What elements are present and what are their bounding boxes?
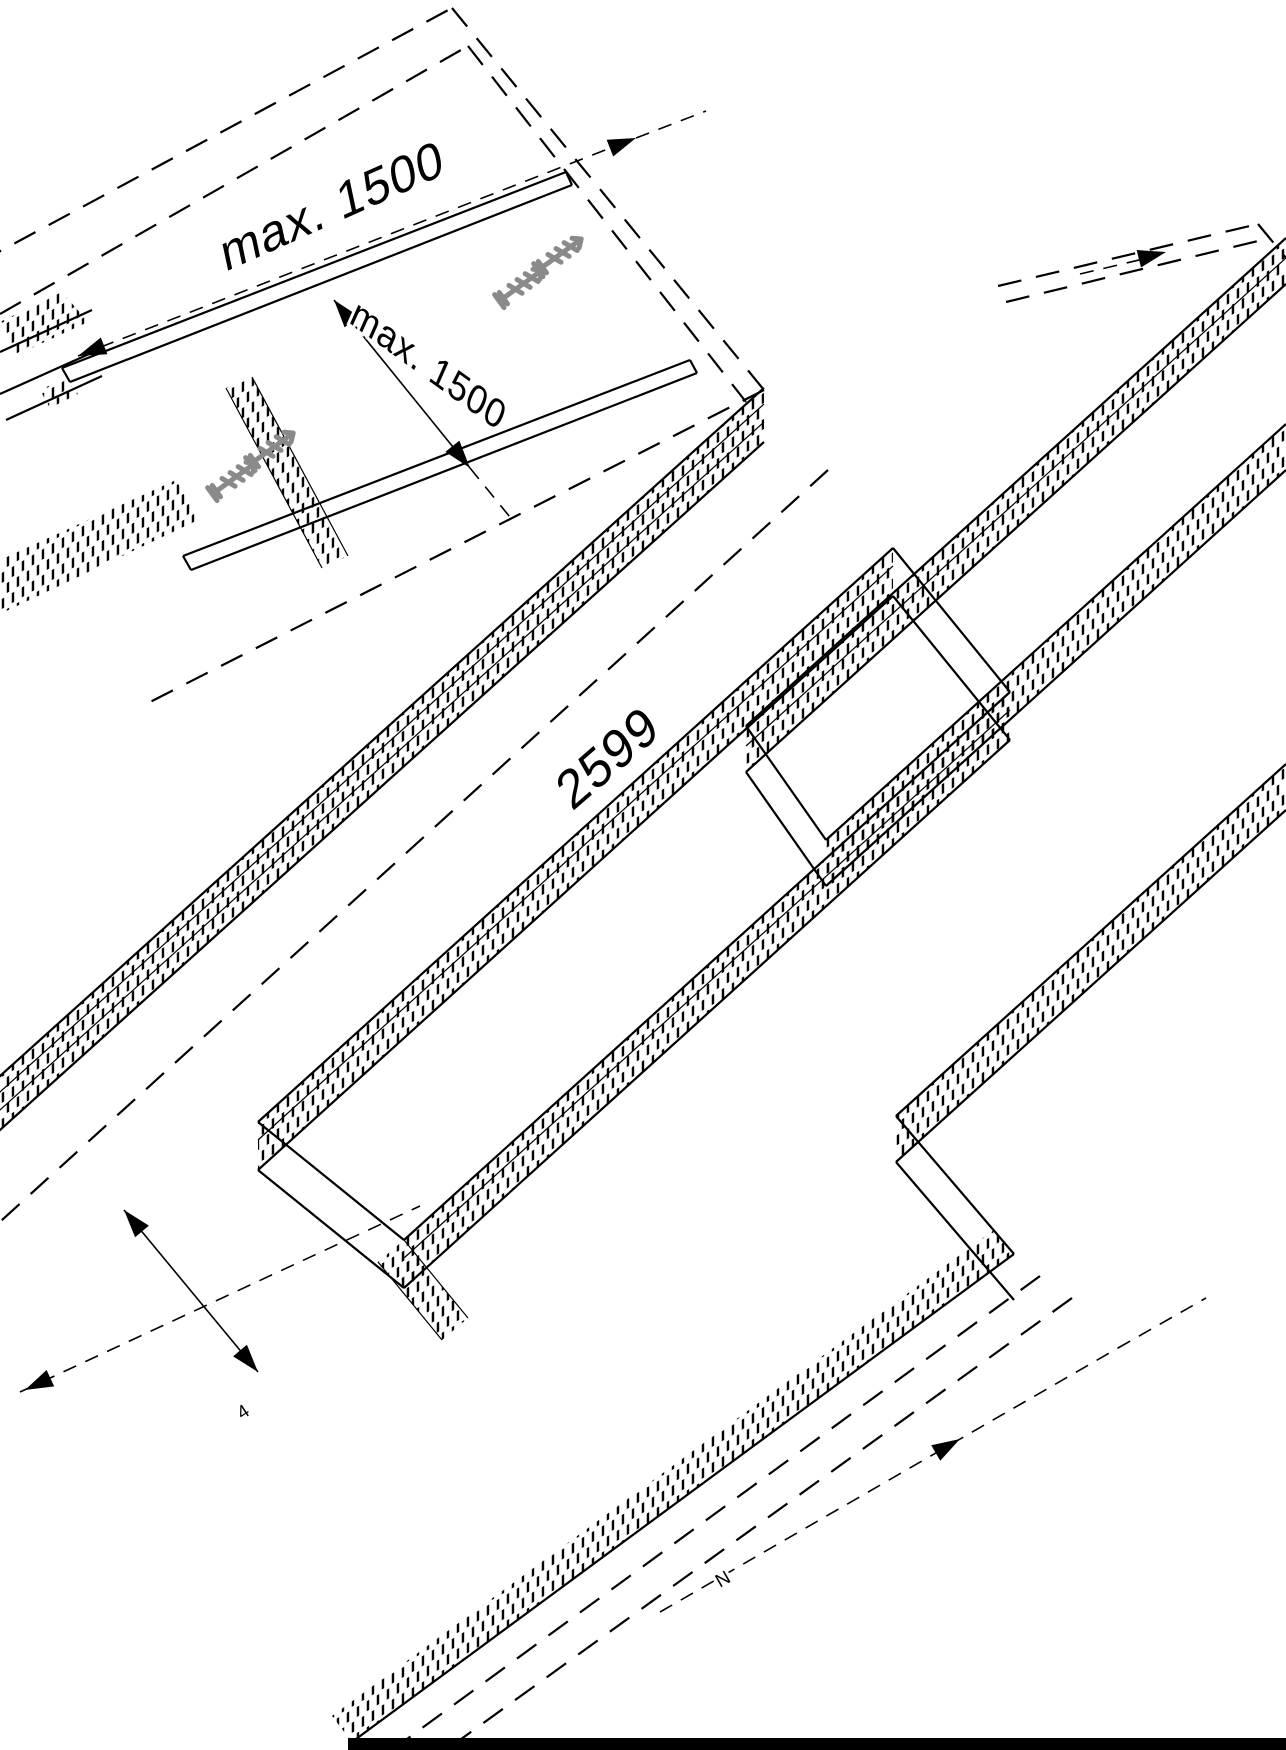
batten-end-cap — [690, 360, 697, 373]
isometric-assembly-drawing: max. 1500 max. 1500 2599 4 N — [0, 0, 1286, 1750]
sheet-layer-line — [258, 566, 893, 1140]
dimension-arrow — [21, 1370, 54, 1398]
dimension-arrow — [607, 130, 640, 157]
drawing-canvas: max. 1500 max. 1500 2599 4 N — [0, 0, 1286, 1750]
dim-label-edge-small: 4 — [233, 1400, 254, 1424]
batten-end-cap — [183, 556, 191, 570]
batten-end-hatch — [40, 378, 78, 408]
panel-edge-hatch — [258, 548, 893, 1170]
panel-right — [746, 224, 1286, 1162]
deck-hidden-edge — [468, 46, 746, 402]
dimension-extension — [470, 468, 514, 522]
dimension-arrow — [931, 1431, 964, 1461]
panel-hidden-edge — [392, 1276, 1072, 1750]
panel-center — [258, 548, 1010, 1340]
dimension-arrow — [117, 1204, 149, 1237]
dim-label-batten-spacing-top: max. 1500 — [215, 128, 448, 283]
deck-left-hatch — [0, 480, 198, 614]
bottom-frame-bar — [348, 1738, 1286, 1750]
dimension-arrow — [233, 1345, 265, 1378]
deck-left-hatch — [0, 292, 88, 356]
hidden-guide-line — [0, 470, 828, 1240]
dimension-extension — [20, 1206, 420, 1392]
screw-icon — [534, 232, 586, 276]
deck-hidden-edge — [150, 390, 764, 702]
dimension-small-left — [20, 1204, 420, 1398]
panel-edge-hatch — [896, 764, 1286, 1162]
